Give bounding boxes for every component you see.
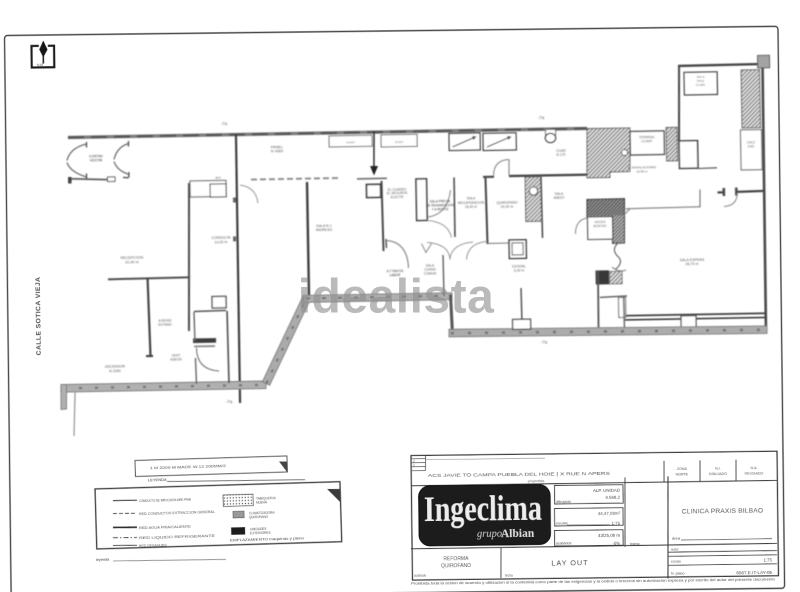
svg-text:4.568,2: 4.568,2	[605, 495, 620, 500]
svg-text:ZONA: ZONA	[677, 467, 688, 471]
svg-text:LAY OUT: LAY OUT	[551, 558, 588, 567]
svg-text:CLINICA PRAXIS BILBAO: CLINICA PRAXIS BILBAO	[682, 508, 764, 516]
svg-text:autor: autor	[671, 547, 680, 551]
svg-text:N.I.: N.I.	[715, 466, 721, 470]
svg-text:18,40 m: 18,40 m	[465, 205, 477, 209]
svg-text:Y A REPOS: Y A REPOS	[432, 207, 449, 211]
svg-text:DIBUJADO: DIBUJADO	[709, 472, 727, 476]
svg-text:10,60 m: 10,60 m	[636, 169, 648, 173]
svg-text:área: área	[672, 535, 681, 540]
svg-text:-7a: -7a	[538, 115, 545, 120]
svg-text:22,40 m: 22,40 m	[125, 260, 139, 264]
svg-text:mostr: mostr	[395, 140, 404, 144]
svg-text:NORTE: NORTE	[676, 472, 689, 476]
svg-text:N 2260: N 2260	[109, 369, 121, 373]
svg-text:N.M: N.M	[37, 63, 43, 67]
svg-text:acabado: acabado	[414, 573, 427, 577]
svg-text:Albian: Albian	[501, 528, 535, 540]
svg-text:Ingeclima: Ingeclima	[424, 488, 542, 529]
svg-text:44,47,08m²: 44,47,08m²	[598, 511, 621, 516]
svg-text:QUIROFANO: QUIROFANO	[441, 563, 471, 569]
svg-text:proyectista: proyectista	[528, 479, 545, 483]
svg-text:idealista: idealista	[298, 271, 495, 324]
svg-text:RED DESAGUES: RED DESAGUES	[139, 543, 168, 548]
svg-text:-0%: -0%	[612, 541, 620, 546]
svg-text:REFORMA: REFORMA	[443, 556, 469, 562]
svg-text:N. plano: N. plano	[671, 571, 684, 575]
svg-text:escala: escala	[671, 559, 681, 563]
svg-text:mostr: mostr	[346, 140, 355, 144]
svg-text:N 170: N 170	[556, 153, 565, 157]
svg-text:dibujado: dibujado	[556, 499, 572, 504]
svg-text:fecha: fecha	[505, 573, 513, 577]
svg-text:escala: escala	[556, 520, 568, 525]
svg-text:-7a: -7a	[226, 399, 233, 404]
svg-text:CALLE SOTICA VIEJA: CALLE SOTICA VIEJA	[35, 277, 43, 356]
svg-text:1:75: 1:75	[611, 521, 620, 526]
svg-text:1:75: 1:75	[763, 558, 772, 563]
svg-text:-7a: -7a	[541, 339, 548, 344]
svg-text:acabados: acabados	[556, 541, 572, 545]
svg-text:6567.E.IT-LAY-05: 6567.E.IT-LAY-05	[736, 570, 772, 575]
svg-text:INGRESO: INGRESO	[316, 228, 333, 232]
svg-text:SOTANO: SOTANO	[158, 323, 172, 327]
svg-text:REVISADO: REVISADO	[745, 471, 764, 475]
svg-text:ALP. UNIDAD: ALP. UNIDAD	[593, 488, 620, 493]
svg-text:NUEVA: NUEVA	[256, 500, 268, 504]
svg-text:43/25,08 m: 43/25,08 m	[598, 533, 620, 538]
svg-text:1: 1	[413, 463, 415, 467]
svg-text:N.A.: N.A.	[750, 466, 757, 470]
svg-text:CLIMA: CLIMA	[696, 83, 706, 87]
svg-text:CLIMAT: CLIMAT	[641, 139, 653, 143]
svg-text:ELECTR: ELECTR	[391, 195, 404, 199]
svg-text:ANEST: ANEST	[553, 196, 564, 200]
svg-text:N 4383: N 4383	[271, 149, 283, 153]
svg-text:grupo: grupo	[477, 529, 502, 540]
svg-text:28,70 m: 28,70 m	[685, 262, 698, 266]
svg-text:MONTAC: MONTAC	[593, 224, 607, 228]
svg-text:leyenda: leyenda	[96, 558, 109, 562]
svg-text:6,30 m: 6,30 m	[514, 269, 524, 273]
svg-text:EXTERIORES: EXTERIORES	[250, 531, 271, 536]
svg-text:VESTIB: VESTIB	[90, 158, 103, 162]
svg-text:ASEOS: ASEOS	[170, 358, 182, 362]
svg-text:14,20 m: 14,20 m	[214, 240, 227, 244]
svg-text:arm: arm	[215, 176, 221, 180]
svg-text:-7a: -7a	[221, 121, 228, 126]
svg-text:24,30 m: 24,30 m	[501, 205, 514, 209]
svg-text:LEYENDA: LEYENDA	[148, 477, 167, 483]
svg-text:QUIROFANO: QUIROFANO	[249, 515, 269, 520]
svg-text:GAS: GAS	[748, 145, 755, 149]
